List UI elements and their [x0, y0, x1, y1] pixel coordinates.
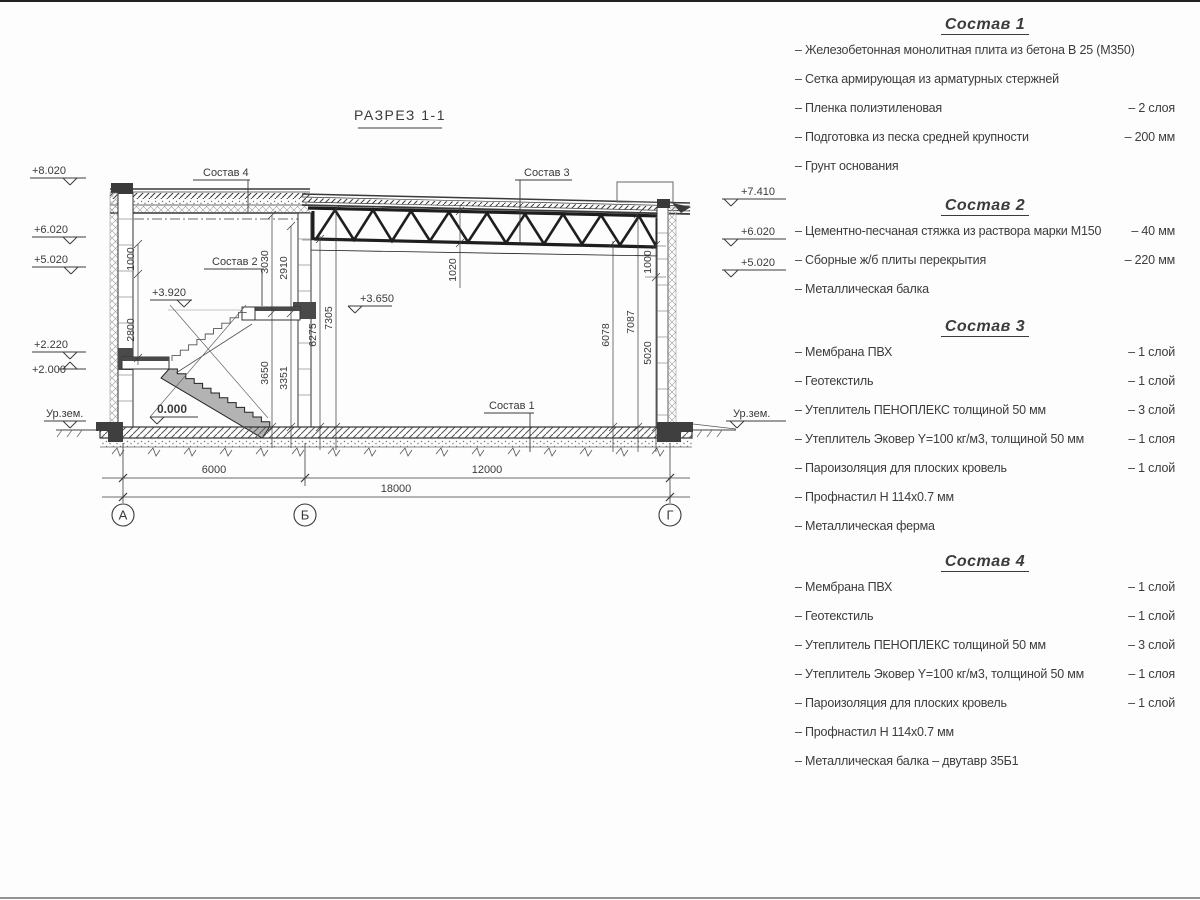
- elev-6020-r: +6.020: [741, 226, 775, 238]
- callout-sostav-3: Состав 3: [524, 167, 570, 179]
- spec-item: – Пароизоляция для плоских кровель– 1 сл…: [795, 462, 1175, 475]
- spec-item: – Мембрана ПВХ– 1 слой: [795, 581, 1175, 594]
- elevation-marks-right: +7.410 +6.020 +5.020 Ур.зем.: [722, 186, 786, 428]
- dim-6275: 6275: [307, 323, 319, 347]
- spec-item: – Металлическая ферма: [795, 520, 1175, 533]
- spec-item: – Подготовка из песка средней крупности–…: [795, 131, 1175, 144]
- elev-3920: +3.920: [152, 287, 186, 299]
- elev-ground-left: Ур.зем.: [46, 408, 83, 420]
- spec-section-2: Состав 2 – Цементно-песчаная стяжка из р…: [795, 197, 1175, 296]
- spec-item: – Сетка армирующая из арматурных стержне…: [795, 73, 1175, 86]
- dim-6000: 6000: [202, 464, 226, 476]
- stair-landing: [122, 357, 169, 369]
- dim-1000-left: 1000: [125, 247, 137, 271]
- axis-label-a: А: [119, 508, 128, 523]
- ground-break-marks: [112, 448, 664, 456]
- ground-slab: [56, 422, 736, 456]
- spec-heading-4: Состав 4: [795, 553, 1175, 571]
- section-drawing-area: РАЗРЕЗ 1-1: [0, 0, 800, 560]
- spec-section-3: Состав 3 – Мембрана ПВХ– 1 слой – Геотек…: [795, 318, 1175, 533]
- spec-section-1: Состав 1 – Железобетонная монолитная пли…: [795, 16, 1175, 173]
- callout-sostav-2: Состав 2: [212, 256, 258, 268]
- axis-label-g: Г: [666, 508, 673, 523]
- dim-3650: 3650: [259, 361, 271, 385]
- spec-item: – Сборные ж/б плиты перекрытия– 220 мм: [795, 254, 1175, 267]
- spec-item: – Профнастил Н 114х0.7 мм: [795, 491, 1175, 504]
- dim-1000-right: 1000: [642, 250, 654, 274]
- dim-5020: 5020: [642, 341, 654, 365]
- drawing-title: РАЗРЕЗ 1-1: [354, 107, 446, 128]
- dim-6078: 6078: [600, 323, 612, 347]
- dim-1020: 1020: [447, 258, 459, 282]
- spec-heading-2: Состав 2: [795, 197, 1175, 215]
- callout-sostav-4: Состав 4: [203, 167, 249, 179]
- elev-5020-r: +5.020: [741, 257, 775, 269]
- elev-ground-right: Ур.зем.: [733, 408, 770, 420]
- elev-8020: +8.020: [32, 165, 66, 177]
- dim-7087: 7087: [625, 310, 637, 334]
- spec-item: – Металлическая балка: [795, 283, 1175, 296]
- dim-12000: 12000: [472, 464, 503, 476]
- wall-axis-g: [657, 199, 676, 427]
- footing-right: [657, 422, 693, 432]
- wall-axis-a: [110, 183, 133, 427]
- spec-item: – Утеплитель ПЕНОПЛЕКС толщиной 50 мм– 3…: [795, 404, 1175, 417]
- staircase: [150, 305, 270, 438]
- elev-7410: +7.410: [741, 186, 775, 198]
- section-drawing: РАЗРЕЗ 1-1: [0, 0, 800, 560]
- spec-item: – Мембрана ПВХ– 1 слой: [795, 346, 1175, 359]
- elevation-marks-left: +8.020 +6.020 +5.020 +2.220 +2.000 Ур.зе…: [30, 165, 86, 428]
- spec-item: – Металлическая балка – двутавр 35Б1: [795, 755, 1175, 768]
- spec-item: – Цементно-песчаная стяжка из раствора м…: [795, 225, 1175, 238]
- spec-item: – Железобетонная монолитная плита из бет…: [795, 44, 1175, 57]
- spec-heading-3: Состав 3: [795, 318, 1175, 336]
- spec-item: – Пароизоляция для плоских кровель– 1 сл…: [795, 697, 1175, 710]
- dim-2910: 2910: [278, 256, 290, 280]
- elev-5020-l: +5.020: [34, 254, 68, 266]
- dim-2800: 2800: [125, 318, 137, 342]
- spec-item: – Грунт основания: [795, 160, 1175, 173]
- dim-7305: 7305: [323, 306, 335, 330]
- spec-item: – Утеплитель Эковер Y=100 кг/м3, толщино…: [795, 668, 1175, 681]
- drawing-title-text: РАЗРЕЗ 1-1: [354, 107, 446, 123]
- spec-section-4: Состав 4 – Мембрана ПВХ– 1 слой – Геотек…: [795, 553, 1175, 768]
- axis-label-b: Б: [301, 508, 310, 523]
- left-roof: [110, 183, 310, 219]
- spec-item: – Профнастил Н 114х0.7 мм: [795, 726, 1175, 739]
- callout-sostav-1: Состав 1: [489, 400, 535, 412]
- elev-3650: +3.650: [360, 293, 394, 305]
- elev-6020-l: +6.020: [34, 224, 68, 236]
- truss-bottom-chord: [314, 239, 658, 247]
- elev-0000: 0.000: [157, 402, 187, 416]
- dim-3030: 3030: [259, 250, 271, 274]
- page-border-bottom: [0, 897, 1200, 899]
- spec-item: – Геотекстиль– 1 слой: [795, 610, 1175, 623]
- dim-3351: 3351: [278, 366, 290, 390]
- spec-item: – Геотекстиль– 1 слой: [795, 375, 1175, 388]
- spec-item: – Утеплитель ПЕНОПЛЕКС толщиной 50 мм– 3…: [795, 639, 1175, 652]
- spec-item: – Утеплитель Эковер Y=100 кг/м3, толщино…: [795, 433, 1175, 446]
- dim-18000: 18000: [381, 483, 412, 495]
- spec-column: Состав 1 – Железобетонная монолитная пли…: [795, 16, 1175, 786]
- axis-bubbles: А Б Г: [112, 504, 681, 526]
- spec-item: – Пленка полиэтиленовая– 2 слоя: [795, 102, 1175, 115]
- spec-heading-1: Состав 1: [795, 16, 1175, 34]
- elev-2220: +2.220: [34, 339, 68, 351]
- elev-2000: +2.000: [32, 364, 66, 376]
- steel-truss: [306, 208, 662, 256]
